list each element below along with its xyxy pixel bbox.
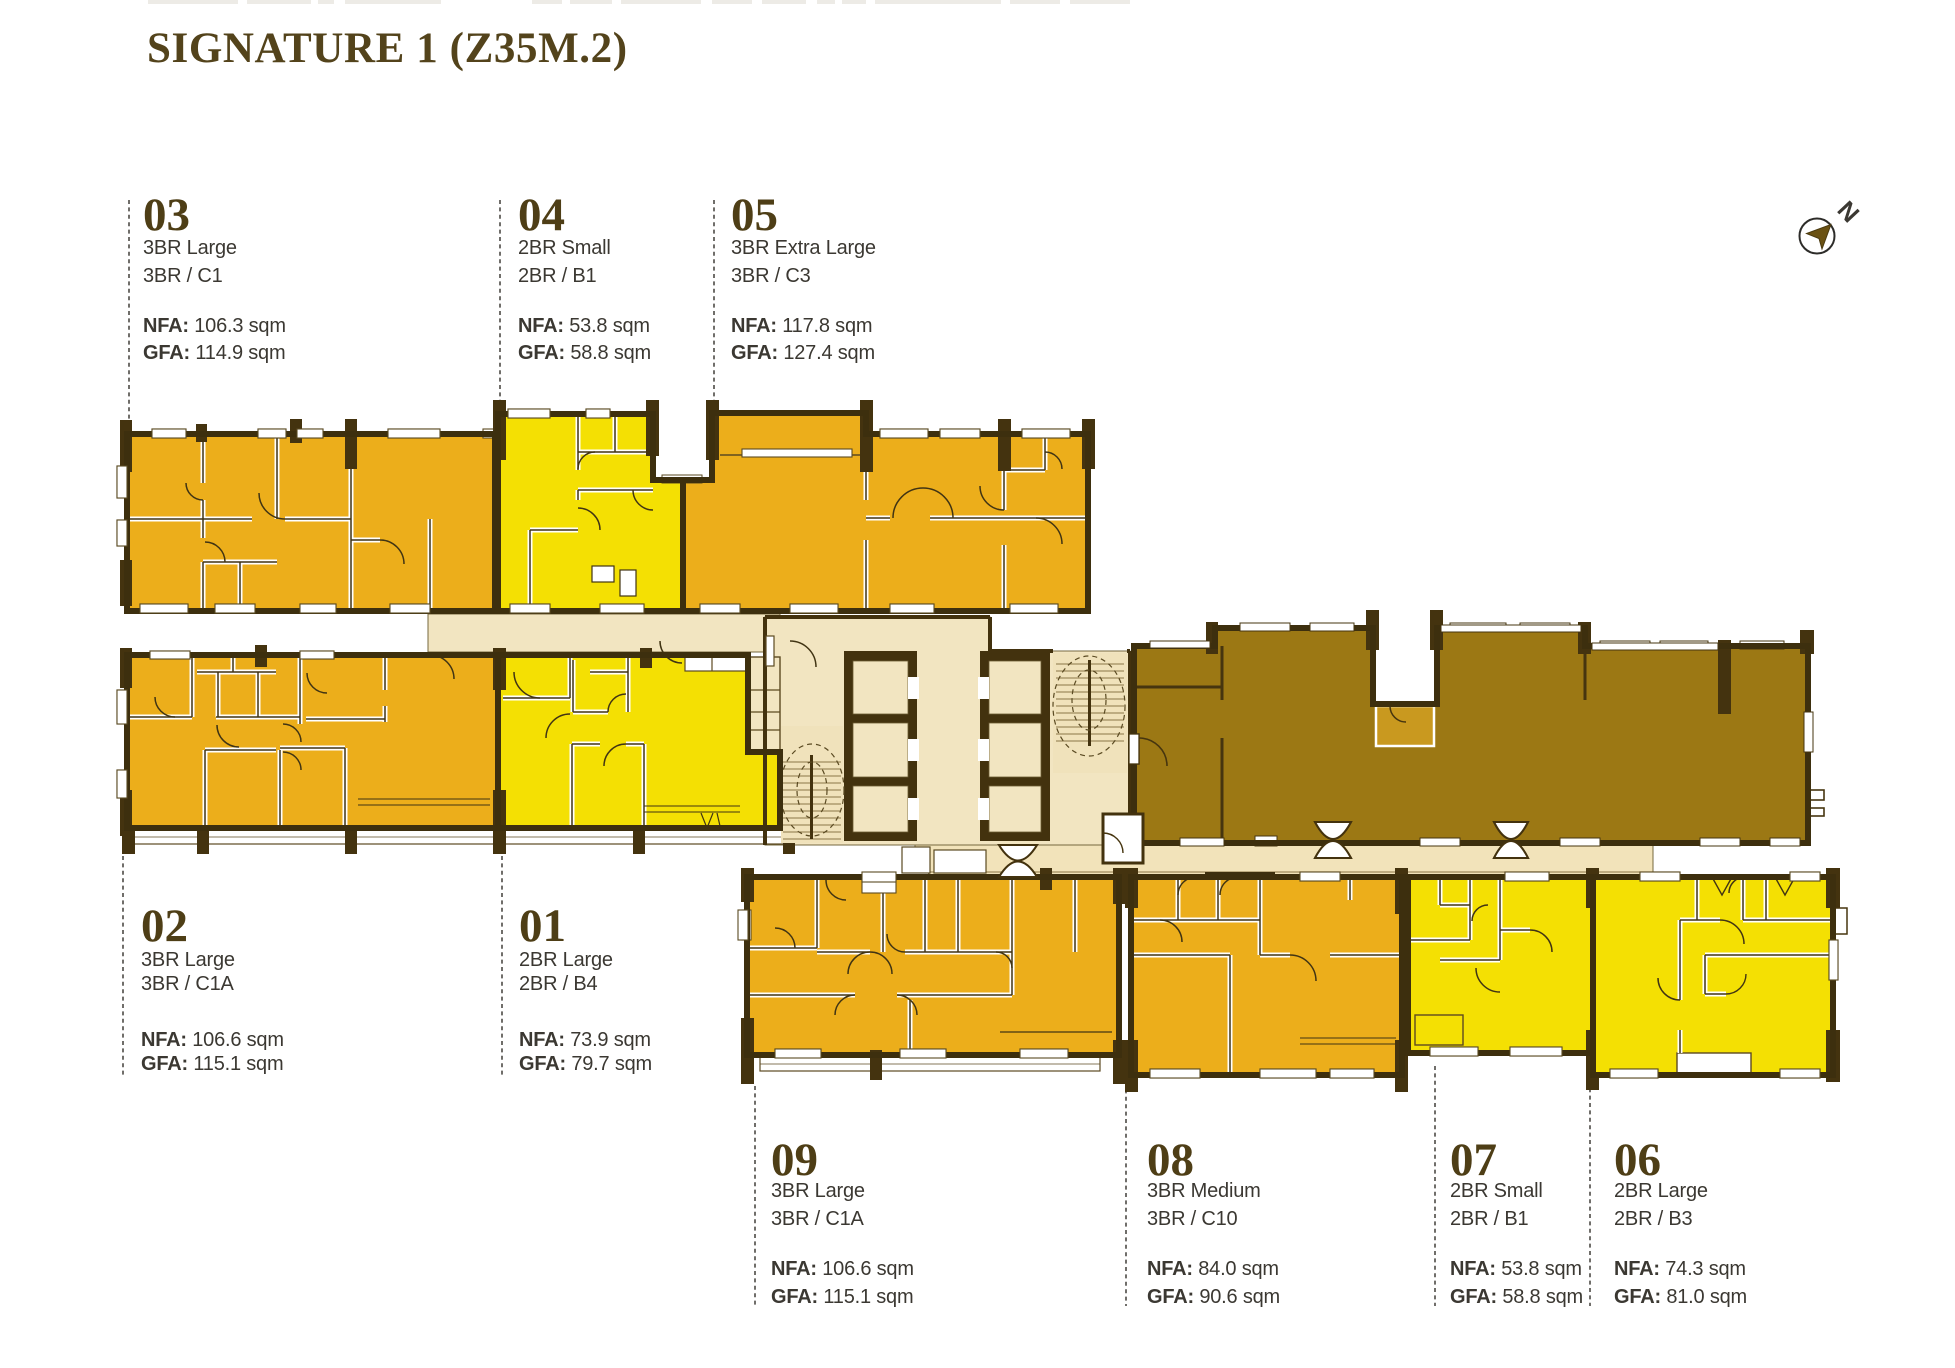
svg-text:09: 09 xyxy=(771,1134,818,1186)
svg-text:2BR / B4: 2BR / B4 xyxy=(519,973,598,995)
svg-text:GFA: 127.4 sqm: GFA: 127.4 sqm xyxy=(731,342,875,364)
svg-text:GFA: 114.9 sqm: GFA: 114.9 sqm xyxy=(143,342,285,364)
svg-text:GFA: 58.8 sqm: GFA: 58.8 sqm xyxy=(1450,1286,1583,1308)
svg-text:3BR Medium: 3BR Medium xyxy=(1147,1180,1261,1202)
svg-text:NFA: 117.8 sqm: NFA: 117.8 sqm xyxy=(731,315,872,337)
svg-text:05: 05 xyxy=(731,189,778,241)
svg-text:02: 02 xyxy=(141,900,188,952)
svg-text:2BR Large: 2BR Large xyxy=(519,949,613,971)
svg-text:07: 07 xyxy=(1450,1134,1497,1186)
svg-text:3BR / C1: 3BR / C1 xyxy=(143,265,223,287)
svg-text:GFA: 90.6 sqm: GFA: 90.6 sqm xyxy=(1147,1286,1280,1308)
svg-text:03: 03 xyxy=(143,189,190,241)
svg-text:3BR / C3: 3BR / C3 xyxy=(731,265,811,287)
svg-text:2BR Small: 2BR Small xyxy=(1450,1180,1543,1202)
svg-text:NFA: 106.3 sqm: NFA: 106.3 sqm xyxy=(143,315,286,337)
svg-text:06: 06 xyxy=(1614,1134,1661,1186)
svg-text:2BR / B1: 2BR / B1 xyxy=(1450,1208,1529,1230)
svg-text:04: 04 xyxy=(518,189,565,241)
svg-text:GFA: 81.0 sqm: GFA: 81.0 sqm xyxy=(1614,1286,1747,1308)
svg-text:GFA: 115.1 sqm: GFA: 115.1 sqm xyxy=(141,1053,283,1075)
svg-text:GFA: 58.8 sqm: GFA: 58.8 sqm xyxy=(518,342,651,364)
svg-text:SIGNATURE 1 (Z35M.2): SIGNATURE 1 (Z35M.2) xyxy=(147,25,628,72)
svg-text:01: 01 xyxy=(519,900,566,952)
svg-text:3BR / C1A: 3BR / C1A xyxy=(141,973,235,995)
svg-text:2BR / B3: 2BR / B3 xyxy=(1614,1208,1693,1230)
svg-text:GFA: 79.7 sqm: GFA: 79.7 sqm xyxy=(519,1053,652,1075)
svg-text:2BR Small: 2BR Small xyxy=(518,237,611,259)
svg-text:NFA: 106.6 sqm: NFA: 106.6 sqm xyxy=(771,1258,914,1280)
svg-text:08: 08 xyxy=(1147,1134,1194,1186)
svg-text:3BR / C1A: 3BR / C1A xyxy=(771,1208,865,1230)
svg-text:NFA: 84.0 sqm: NFA: 84.0 sqm xyxy=(1147,1258,1279,1280)
svg-text:2BR Large: 2BR Large xyxy=(1614,1180,1708,1202)
svg-text:3BR Large: 3BR Large xyxy=(141,949,235,971)
svg-text:3BR Extra Large: 3BR Extra Large xyxy=(731,237,876,259)
svg-text:3BR / C10: 3BR / C10 xyxy=(1147,1208,1238,1230)
svg-text:3BR Large: 3BR Large xyxy=(143,237,237,259)
svg-text:NFA: 73.9 sqm: NFA: 73.9 sqm xyxy=(519,1029,651,1051)
svg-text:NFA: 106.6 sqm: NFA: 106.6 sqm xyxy=(141,1029,284,1051)
svg-text:2BR / B1: 2BR / B1 xyxy=(518,265,597,287)
svg-text:3BR Large: 3BR Large xyxy=(771,1180,865,1202)
svg-text:NFA: 53.8 sqm: NFA: 53.8 sqm xyxy=(518,315,650,337)
svg-text:GFA: 115.1 sqm: GFA: 115.1 sqm xyxy=(771,1286,913,1308)
svg-text:NFA: 53.8 sqm: NFA: 53.8 sqm xyxy=(1450,1258,1582,1280)
svg-text:NFA: 74.3 sqm: NFA: 74.3 sqm xyxy=(1614,1258,1746,1280)
